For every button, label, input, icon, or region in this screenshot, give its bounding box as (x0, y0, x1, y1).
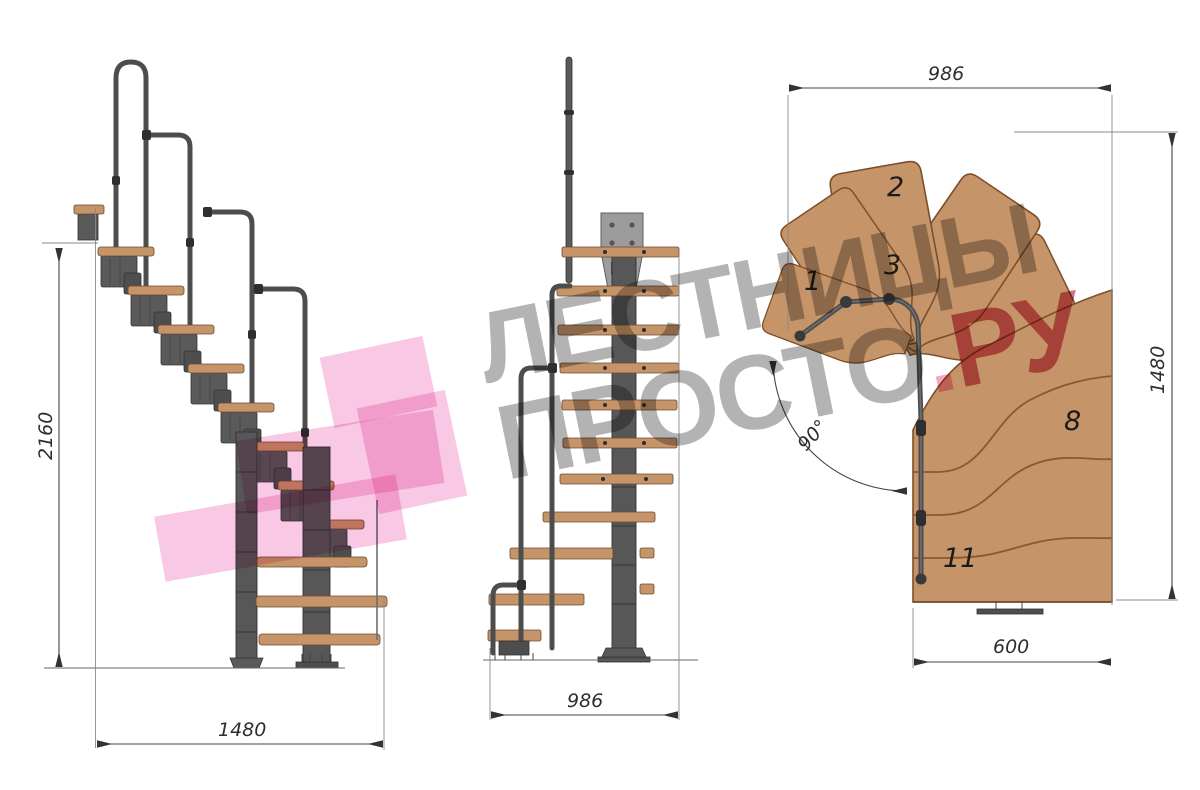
tread-number-11: 11 (943, 543, 977, 574)
plan-view: 1 2 3 8 11 986 1480 600 9 (760, 63, 1178, 668)
tread-number-8: 8 (1064, 406, 1081, 437)
tread-number-2: 2 (887, 172, 904, 203)
plan-exit-width-label: 600 (993, 636, 1029, 658)
front-treads (488, 247, 679, 641)
side-width-label: 1480 (218, 719, 266, 741)
dim-side-height: 2160 (35, 208, 98, 748)
plan-width-label: 986 (928, 63, 964, 85)
front-column (598, 253, 650, 662)
plan-depth-label: 1480 (1147, 346, 1169, 394)
dim-plan-exit-width: 600 (913, 608, 1110, 668)
front-width-label: 986 (567, 690, 603, 712)
side-height-label: 2160 (35, 412, 57, 460)
tread-number-3: 3 (884, 250, 901, 281)
side-elevation-view: 2160 1480 (35, 62, 387, 750)
staircase-drawing: 2160 1480 (0, 0, 1200, 790)
plan-base-plate (977, 609, 1043, 614)
plan-angle-label: 90° (793, 416, 832, 456)
blueprint-canvas: 2160 1480 (0, 0, 1200, 790)
dim-plan-angle: 90° (773, 362, 906, 491)
tread-number-1: 1 (804, 266, 821, 297)
front-elevation-view: 986 (483, 57, 698, 720)
